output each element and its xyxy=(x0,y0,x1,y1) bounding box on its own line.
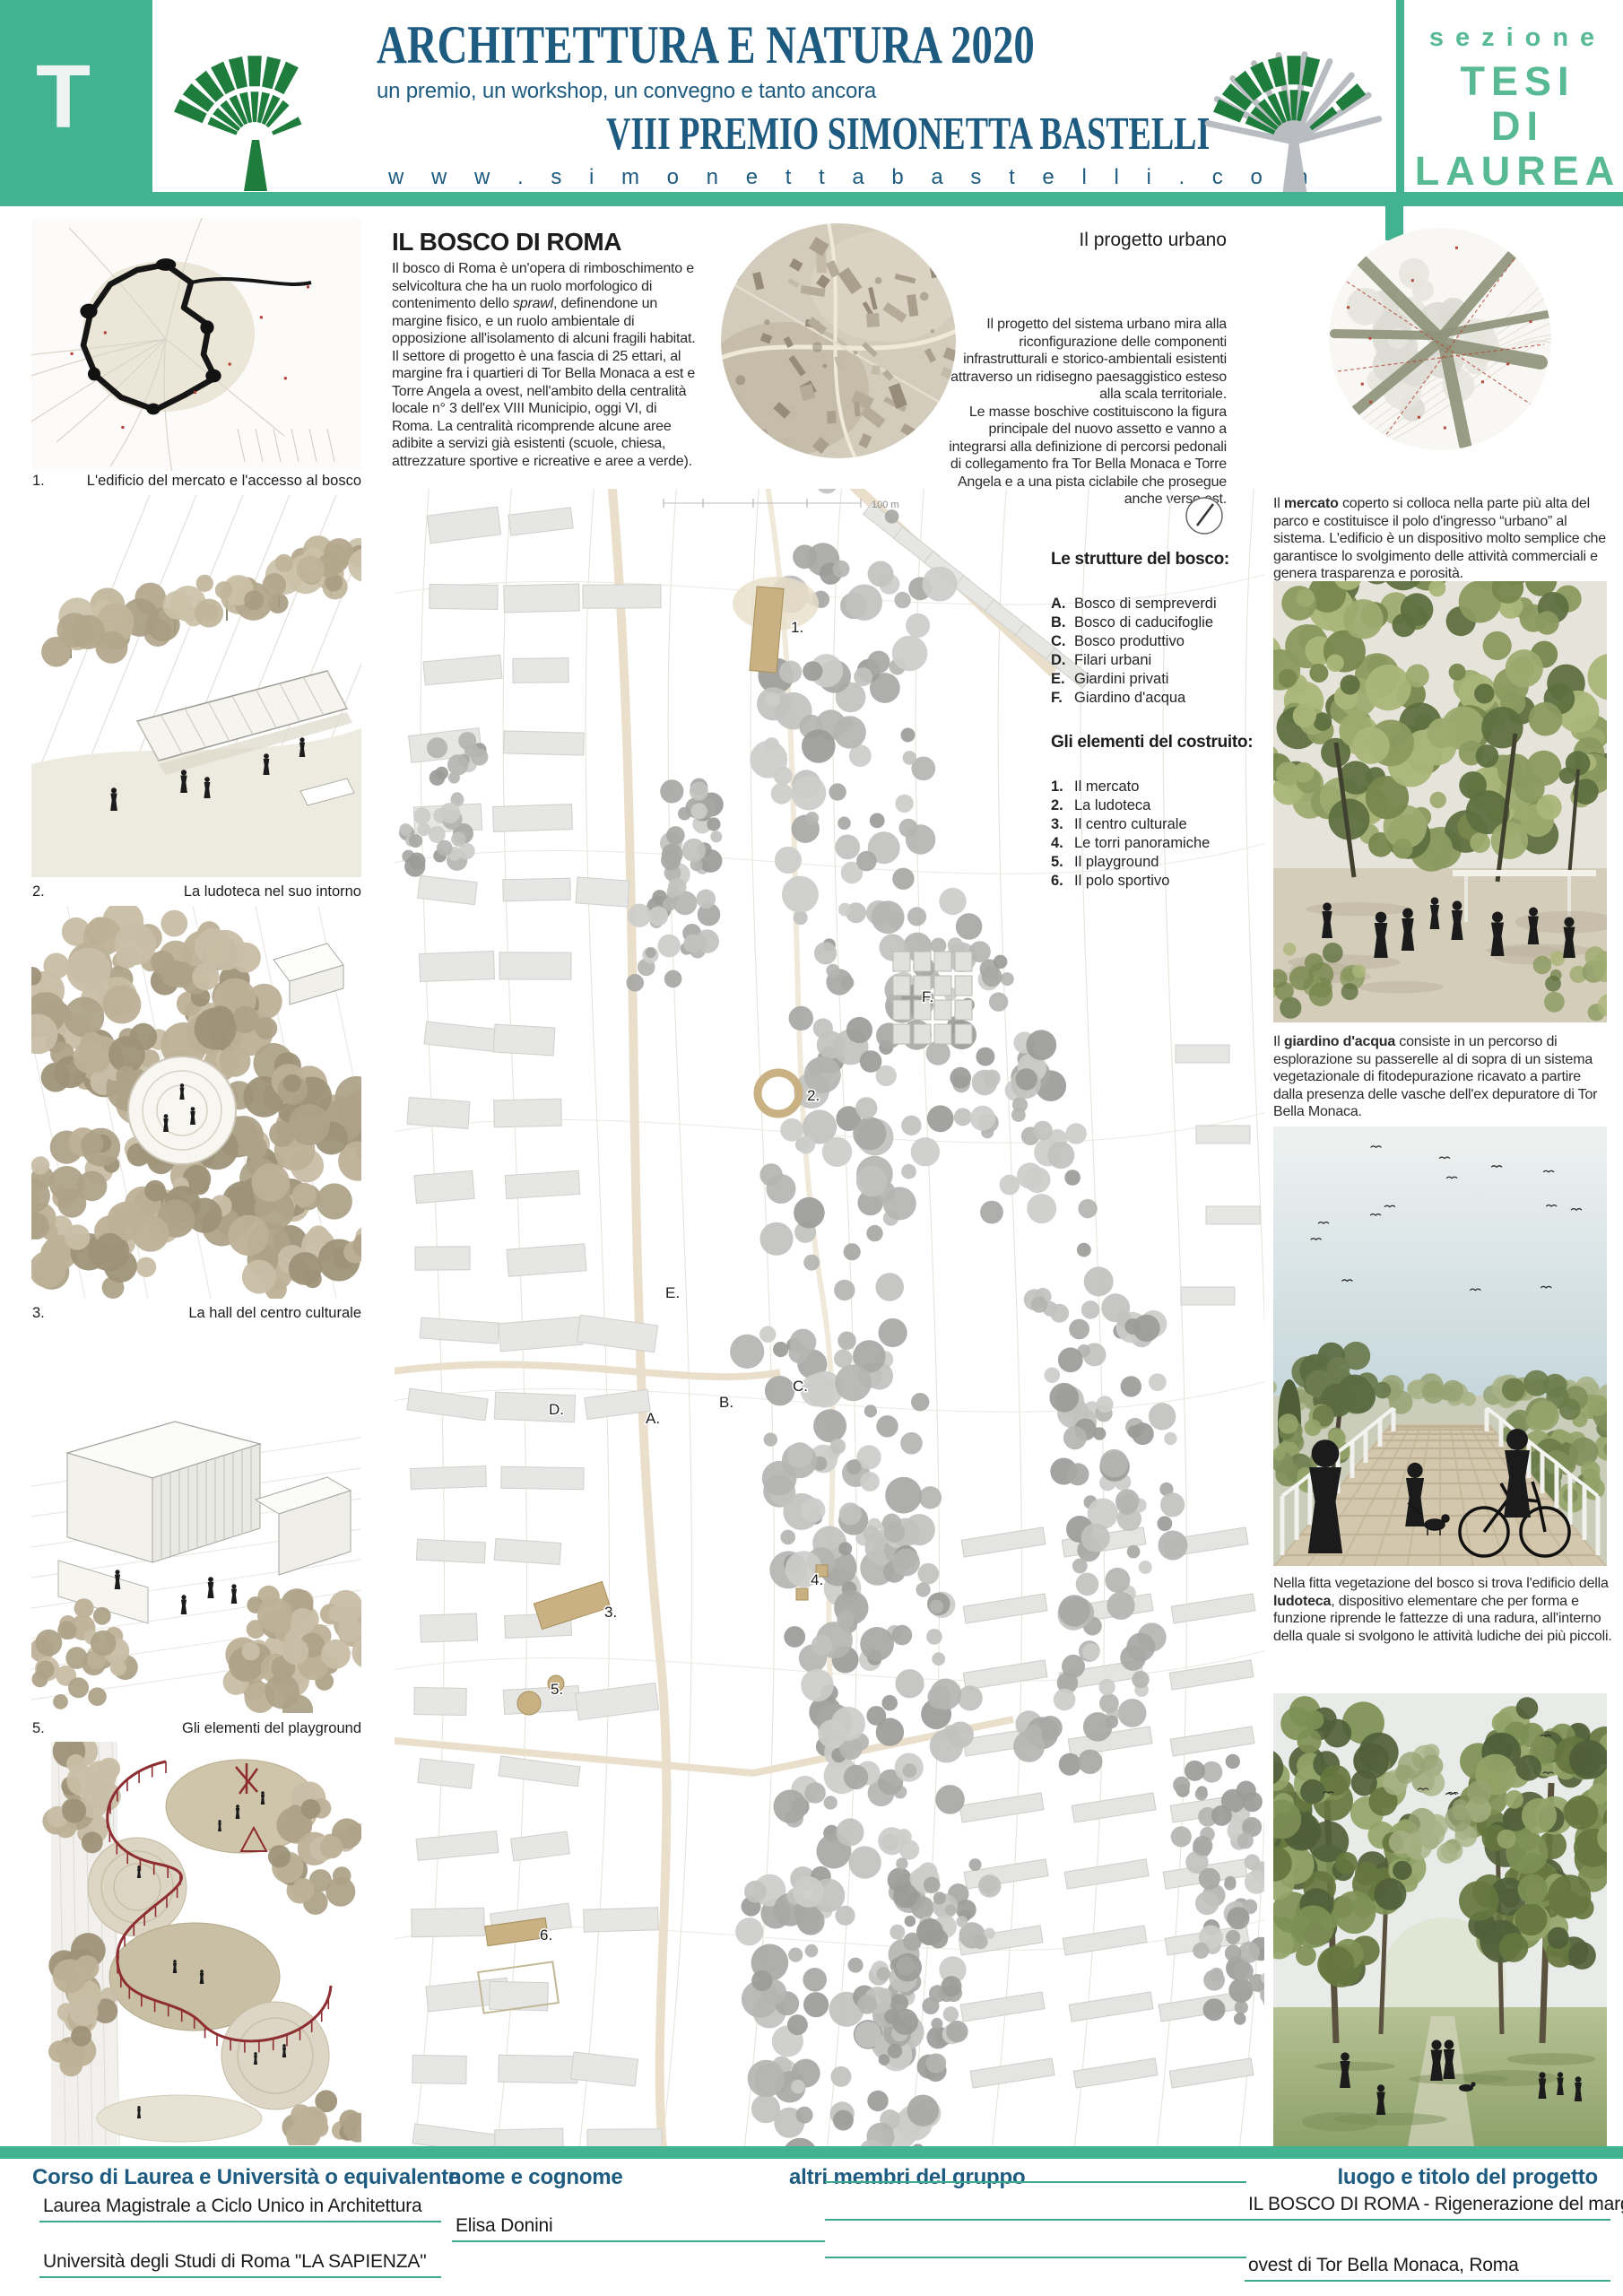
footer-label-course: Corso di Laurea e Università o equivalen… xyxy=(32,2165,460,2190)
svg-text:E.: E. xyxy=(665,1284,680,1301)
legend-key: C. xyxy=(1051,632,1074,651)
text-bold: mercato xyxy=(1284,496,1339,511)
website-url: w w w . s i m o n e t t a b a s t e l l … xyxy=(388,165,1195,190)
legend-key: D. xyxy=(1051,651,1074,670)
text-bold: giardino d'acqua xyxy=(1284,1034,1395,1049)
legend-key: B. xyxy=(1051,613,1074,632)
figure-caption-text: La hall del centro culturale xyxy=(188,1305,361,1322)
legend-label: Bosco di sempreverdi xyxy=(1074,595,1217,613)
legend-item: E.Giardini privati xyxy=(1051,670,1229,689)
text: Il xyxy=(1273,496,1284,511)
legend-label: Il mercato xyxy=(1074,778,1139,796)
urban-plan-circle-map xyxy=(1329,228,1551,450)
market-axonometry-figure xyxy=(31,495,361,877)
university-value: Università degli Studi di Roma "LA SAPIE… xyxy=(39,2251,441,2278)
legend-key: 2. xyxy=(1051,796,1074,815)
boardwalk-render-photo xyxy=(1273,1126,1607,1566)
intro-paragraph: Il bosco di Roma è un'opera di rimboschi… xyxy=(392,260,699,470)
market-paragraph: Il mercato coperto si colloca nella part… xyxy=(1273,495,1612,583)
aerial-photo-circle xyxy=(721,223,956,458)
legend-built-heading: Gli elementi del costruito: xyxy=(1051,733,1253,752)
competition-poster: T ARCHITETTURA E NATURA 2020 un premio, … xyxy=(0,0,1623,2296)
section-label: sezione xyxy=(1412,23,1623,53)
svg-text:F.: F. xyxy=(922,988,933,1005)
legend-label: Le torri panoramiche xyxy=(1074,834,1210,853)
legend-key: 3. xyxy=(1051,815,1074,834)
legend-structures: Le strutture del bosco: A.Bosco di sempr… xyxy=(1051,550,1229,708)
legend-key: 5. xyxy=(1051,853,1074,872)
legend-key: 1. xyxy=(1051,778,1074,796)
legend-item: 3.Il centro culturale xyxy=(1051,815,1253,834)
text: Il xyxy=(1273,1034,1284,1049)
legend-item: F.Giardino d'acqua xyxy=(1051,689,1229,708)
legend-label: Il centro culturale xyxy=(1074,815,1187,834)
svg-text:A.: A. xyxy=(646,1410,660,1427)
tree-logo-right-icon xyxy=(1193,5,1394,196)
svg-text:6.: 6. xyxy=(540,1926,552,1944)
figure-caption-text: Gli elementi del playground xyxy=(182,1720,361,1737)
cultural-center-axonometry-figure xyxy=(31,1327,361,1713)
author-name-value: Elisa Donini xyxy=(452,2215,825,2242)
text: Nella fitta vegetazione del bosco si tro… xyxy=(1273,1576,1609,1591)
legend-item: A.Bosco di sempreverdi xyxy=(1051,595,1229,613)
urban-project-heading: Il progetto urbano xyxy=(952,230,1227,251)
event-subtitle: un premio, un workshop, un convegno e ta… xyxy=(377,79,876,104)
legend-label: Filari urbani xyxy=(1074,651,1151,670)
legend-key: E. xyxy=(1051,670,1074,689)
legend-item: D.Filari urbani xyxy=(1051,651,1229,670)
svg-text:B.: B. xyxy=(719,1394,733,1411)
playground-axonometry-figure xyxy=(31,1742,361,2145)
masterplan: 100 m1.2.F.E.D.A.B.C.4.3.5.6. Le struttu… xyxy=(395,489,1264,2148)
figure-caption-3: 3. La hall del centro culturale xyxy=(32,1305,361,1322)
ludoteca-axonometry-figure xyxy=(31,906,361,1299)
legend-label: La ludoteca xyxy=(1074,796,1150,815)
legend-item: 1.Il mercato xyxy=(1051,778,1253,796)
legend-key: 4. xyxy=(1051,834,1074,853)
section-letter: T xyxy=(36,52,91,142)
footer-label-project: luogo e titolo del progetto xyxy=(1337,2165,1598,2190)
member-line xyxy=(825,2215,1246,2221)
legend-label: Il polo sportivo xyxy=(1074,872,1169,891)
header-rule-bar xyxy=(0,192,1623,206)
figure-number: 1. xyxy=(32,473,45,490)
svg-text:4.: 4. xyxy=(811,1571,823,1588)
project-place-value: ovest di Tor Bella Monaca, Roma xyxy=(1245,2255,1610,2282)
legend-label: Giardini privati xyxy=(1074,670,1168,689)
footer-label-name: nome e cognome xyxy=(448,2165,623,2190)
svg-text:2.: 2. xyxy=(807,1087,820,1104)
section-name-line: TESI xyxy=(1412,59,1623,104)
legend-label: Il playground xyxy=(1074,853,1159,872)
prize-title: VIII PREMIO SIMONETTA BASTELLI xyxy=(606,108,1195,161)
figure-number: 3. xyxy=(32,1305,45,1322)
legend-item: 5.Il playground xyxy=(1051,853,1253,872)
figure-number: 2. xyxy=(32,883,45,900)
legend-key: 6. xyxy=(1051,872,1074,891)
urban-project-paragraph: Il progetto del sistema urbano mira alla… xyxy=(943,316,1227,509)
figure-number: 5. xyxy=(32,1720,45,1737)
figure-caption-text: La ludoteca nel suo intorno xyxy=(184,883,361,900)
course-value: Laurea Magistrale a Ciclo Unico in Archi… xyxy=(39,2196,441,2222)
legend-item: 6.Il polo sportivo xyxy=(1051,872,1253,891)
header-divider xyxy=(1396,0,1404,206)
water-garden-paragraph: Il giardino d'acqua consiste in un perco… xyxy=(1273,1033,1612,1121)
legend-item: 2.La ludoteca xyxy=(1051,796,1253,815)
svg-text:3.: 3. xyxy=(604,1604,617,1621)
intro-p2: Il settore di progetto è una fascia di 2… xyxy=(392,349,695,469)
section-name: TESI DI LAUREA xyxy=(1412,59,1623,194)
member-line xyxy=(825,2178,1246,2183)
intro-heading: IL BOSCO DI ROMA xyxy=(392,228,621,257)
section-name-line: DI xyxy=(1412,104,1623,149)
svg-text:1.: 1. xyxy=(791,619,803,636)
territory-map-figure xyxy=(31,218,361,471)
footer-rule-bar xyxy=(0,2146,1623,2159)
figure-caption-2: 2. La ludoteca nel suo intorno xyxy=(32,883,361,900)
legend-item: 4.Le torri panoramiche xyxy=(1051,834,1253,853)
figure-caption-5: 5. Gli elementi del playground xyxy=(32,1720,361,1737)
market-render-photo xyxy=(1273,581,1607,1022)
intro-p1-italic: sprawl xyxy=(513,296,553,311)
ludoteca-paragraph: Nella fitta vegetazione del bosco si tro… xyxy=(1273,1575,1612,1645)
text-bold: ludoteca xyxy=(1273,1594,1331,1609)
legend-item: B.Bosco di caducifoglie xyxy=(1051,613,1229,632)
tree-logo-left-icon xyxy=(158,7,351,191)
legend-structures-heading: Le strutture del bosco: xyxy=(1051,550,1229,570)
figure-caption-text: L'edificio del mercato e l'accesso al bo… xyxy=(87,473,361,490)
svg-text:C.: C. xyxy=(793,1378,808,1395)
member-line xyxy=(825,2253,1246,2258)
park-render-photo xyxy=(1273,1693,1607,2146)
legend-label: Giardino d'acqua xyxy=(1074,689,1185,708)
legend-label: Bosco produttivo xyxy=(1074,632,1185,651)
urban-p1: Il progetto del sistema urbano mira alla… xyxy=(950,317,1227,402)
svg-text:100 m: 100 m xyxy=(872,500,899,510)
figure-caption-1: 1. L'edificio del mercato e l'accesso al… xyxy=(32,473,361,490)
legend-label: Bosco di caducifoglie xyxy=(1074,613,1213,632)
legend-key: A. xyxy=(1051,595,1074,613)
legend-built: Gli elementi del costruito: 1.Il mercato… xyxy=(1051,733,1253,891)
svg-text:D.: D. xyxy=(549,1401,564,1418)
event-title: ARCHITETTURA E NATURA 2020 xyxy=(377,14,1035,76)
legend-item: C.Bosco produttivo xyxy=(1051,632,1229,651)
svg-text:5.: 5. xyxy=(551,1681,563,1698)
project-title-value: IL BOSCO DI ROMA - Rigenerazione del mar… xyxy=(1245,2194,1610,2221)
legend-key: F. xyxy=(1051,689,1074,708)
section-name-line: LAUREA xyxy=(1412,149,1623,194)
